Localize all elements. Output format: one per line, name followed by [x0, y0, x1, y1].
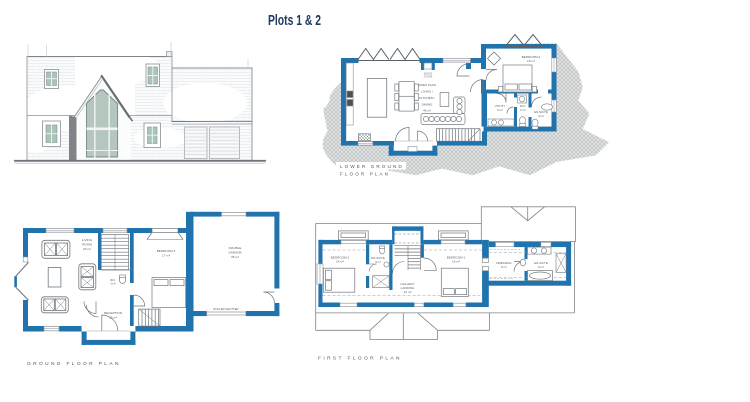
svg-text:6 m²: 6 m²	[501, 265, 507, 269]
svg-text:5 m²: 5 m²	[497, 108, 503, 112]
svg-text:FIRST FLOOR PLAN: FIRST FLOOR PLAN	[318, 356, 402, 362]
svg-text:ROOM: ROOM	[82, 243, 92, 247]
svg-text:DOUBLE: DOUBLE	[229, 246, 242, 250]
svg-text:GROUND FLOOR PLAN: GROUND FLOOR PLAN	[27, 361, 121, 367]
svg-text:BEDROOM 3: BEDROOM 3	[157, 249, 176, 253]
svg-text:14 m²: 14 m²	[404, 290, 412, 294]
svg-text:1 m²: 1 m²	[110, 282, 115, 286]
svg-text:3 m²: 3 m²	[375, 260, 381, 264]
svg-text:FLOOR PLAN: FLOOR PLAN	[340, 171, 390, 176]
svg-text:GARAGE: GARAGE	[228, 251, 241, 255]
svg-text:W.C.: W.C.	[110, 278, 116, 282]
svg-text:17 m²: 17 m²	[162, 254, 170, 258]
svg-text:16 m²: 16 m²	[452, 260, 460, 264]
svg-text:STOVE: STOVE	[424, 75, 433, 79]
svg-text:16 m²: 16 m²	[527, 59, 535, 63]
svg-text:23 m²: 23 m²	[83, 247, 91, 251]
svg-text:2 m²: 2 m²	[520, 108, 526, 112]
svg-text:KITCHEN /: KITCHEN /	[419, 96, 434, 100]
svg-text:35 m²: 35 m²	[231, 255, 239, 259]
svg-text:LIVING /: LIVING /	[421, 90, 433, 94]
svg-text:46 m²: 46 m²	[423, 109, 431, 113]
svg-text:Plots 1 & 2: Plots 1 & 2	[268, 12, 321, 29]
svg-text:OPEN PLAN: OPEN PLAN	[418, 83, 436, 87]
svg-text:6 m²: 6 m²	[538, 265, 544, 269]
svg-text:LOWER GROUND: LOWER GROUND	[340, 164, 404, 169]
svg-text:LIVING: LIVING	[82, 238, 93, 242]
svg-text:ROLLER SHUTTER: ROLLER SHUTTER	[213, 307, 238, 311]
svg-text:RECEPTION: RECEPTION	[104, 311, 122, 315]
svg-text:4 m²: 4 m²	[538, 114, 544, 118]
svg-text:DINING: DINING	[422, 103, 433, 107]
svg-text:14 m²: 14 m²	[336, 260, 344, 264]
